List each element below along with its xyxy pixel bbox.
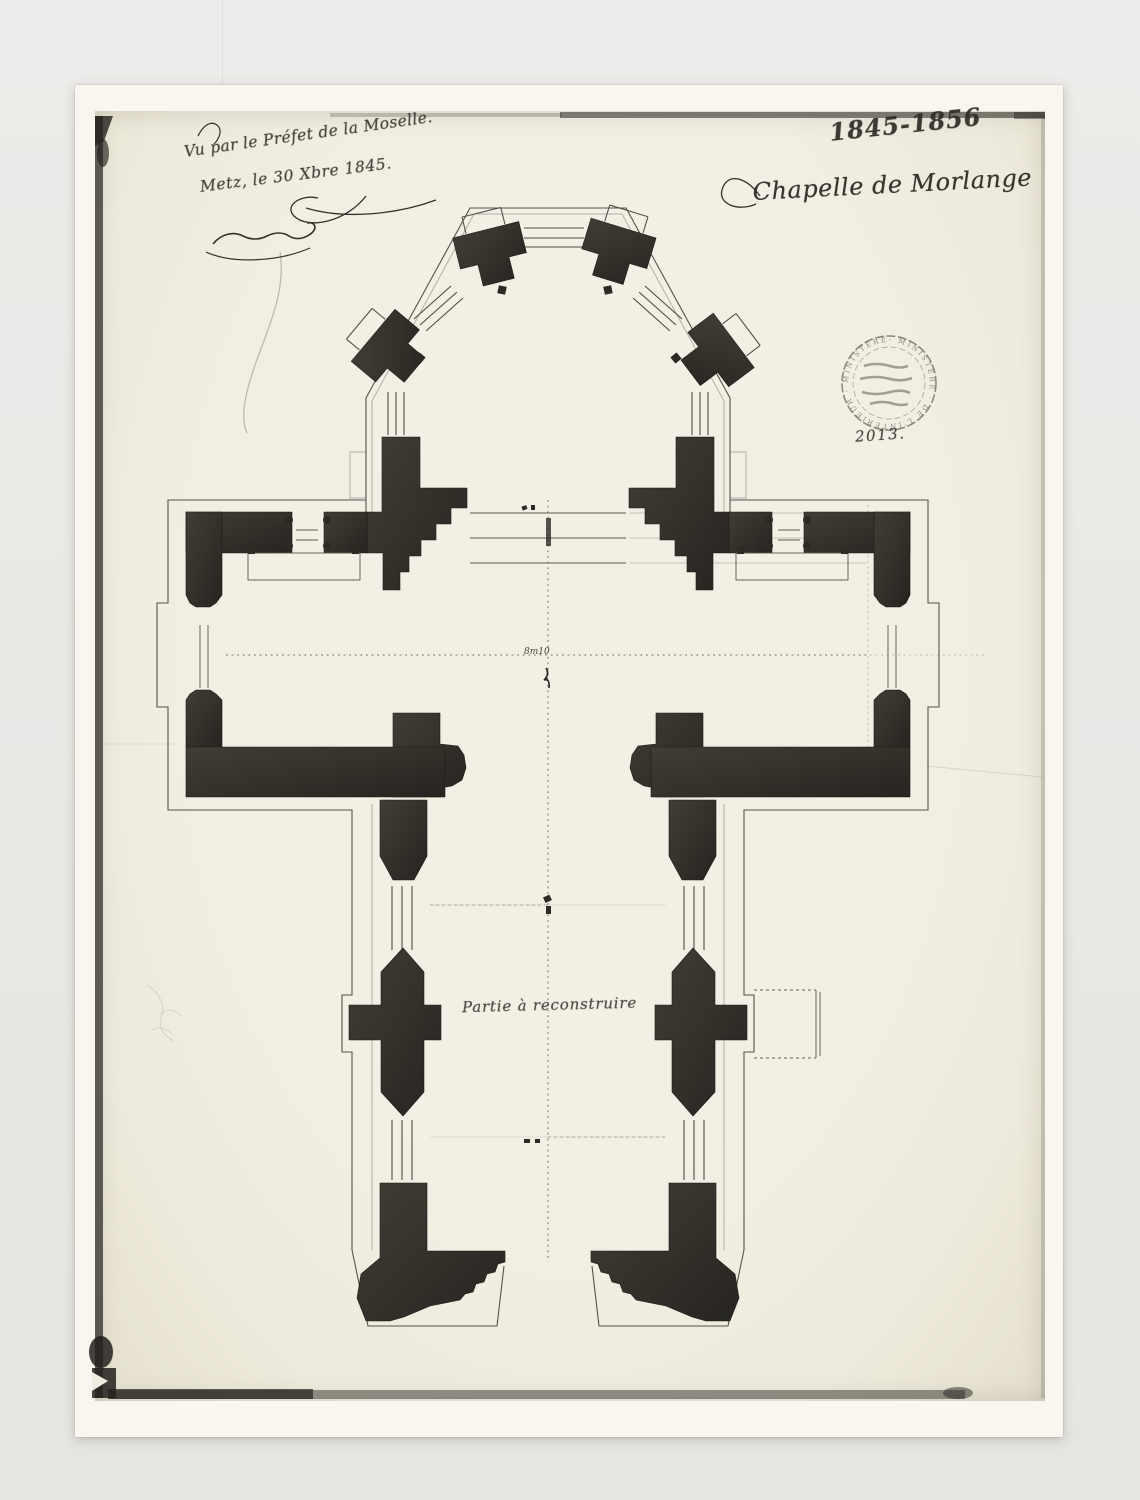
archive-photo-scene: 8m10 · MINISTÈRE · DE L'INTÉRIEUR · MINI…	[0, 0, 1140, 1500]
stamp-inventory-number: 2013.	[854, 424, 906, 445]
photo-emulsion	[95, 111, 1045, 1401]
background-scan-line	[222, 0, 223, 86]
photo-paper-border	[75, 85, 1063, 1437]
